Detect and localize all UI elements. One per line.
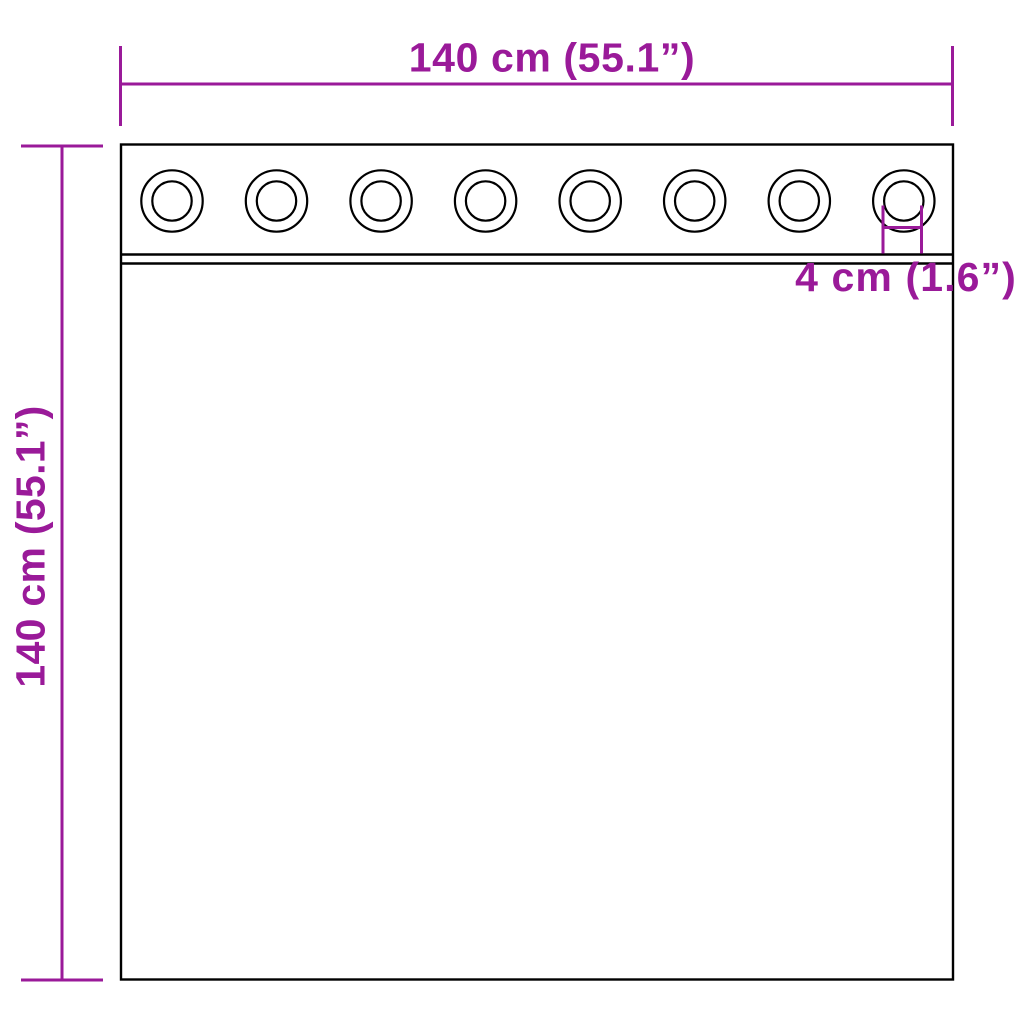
- svg-text:140 cm (55.1”): 140 cm (55.1”): [8, 405, 54, 687]
- svg-text:140 cm (55.1”): 140 cm (55.1”): [409, 35, 695, 81]
- svg-text:4 cm (1.6”): 4 cm (1.6”): [795, 254, 1017, 300]
